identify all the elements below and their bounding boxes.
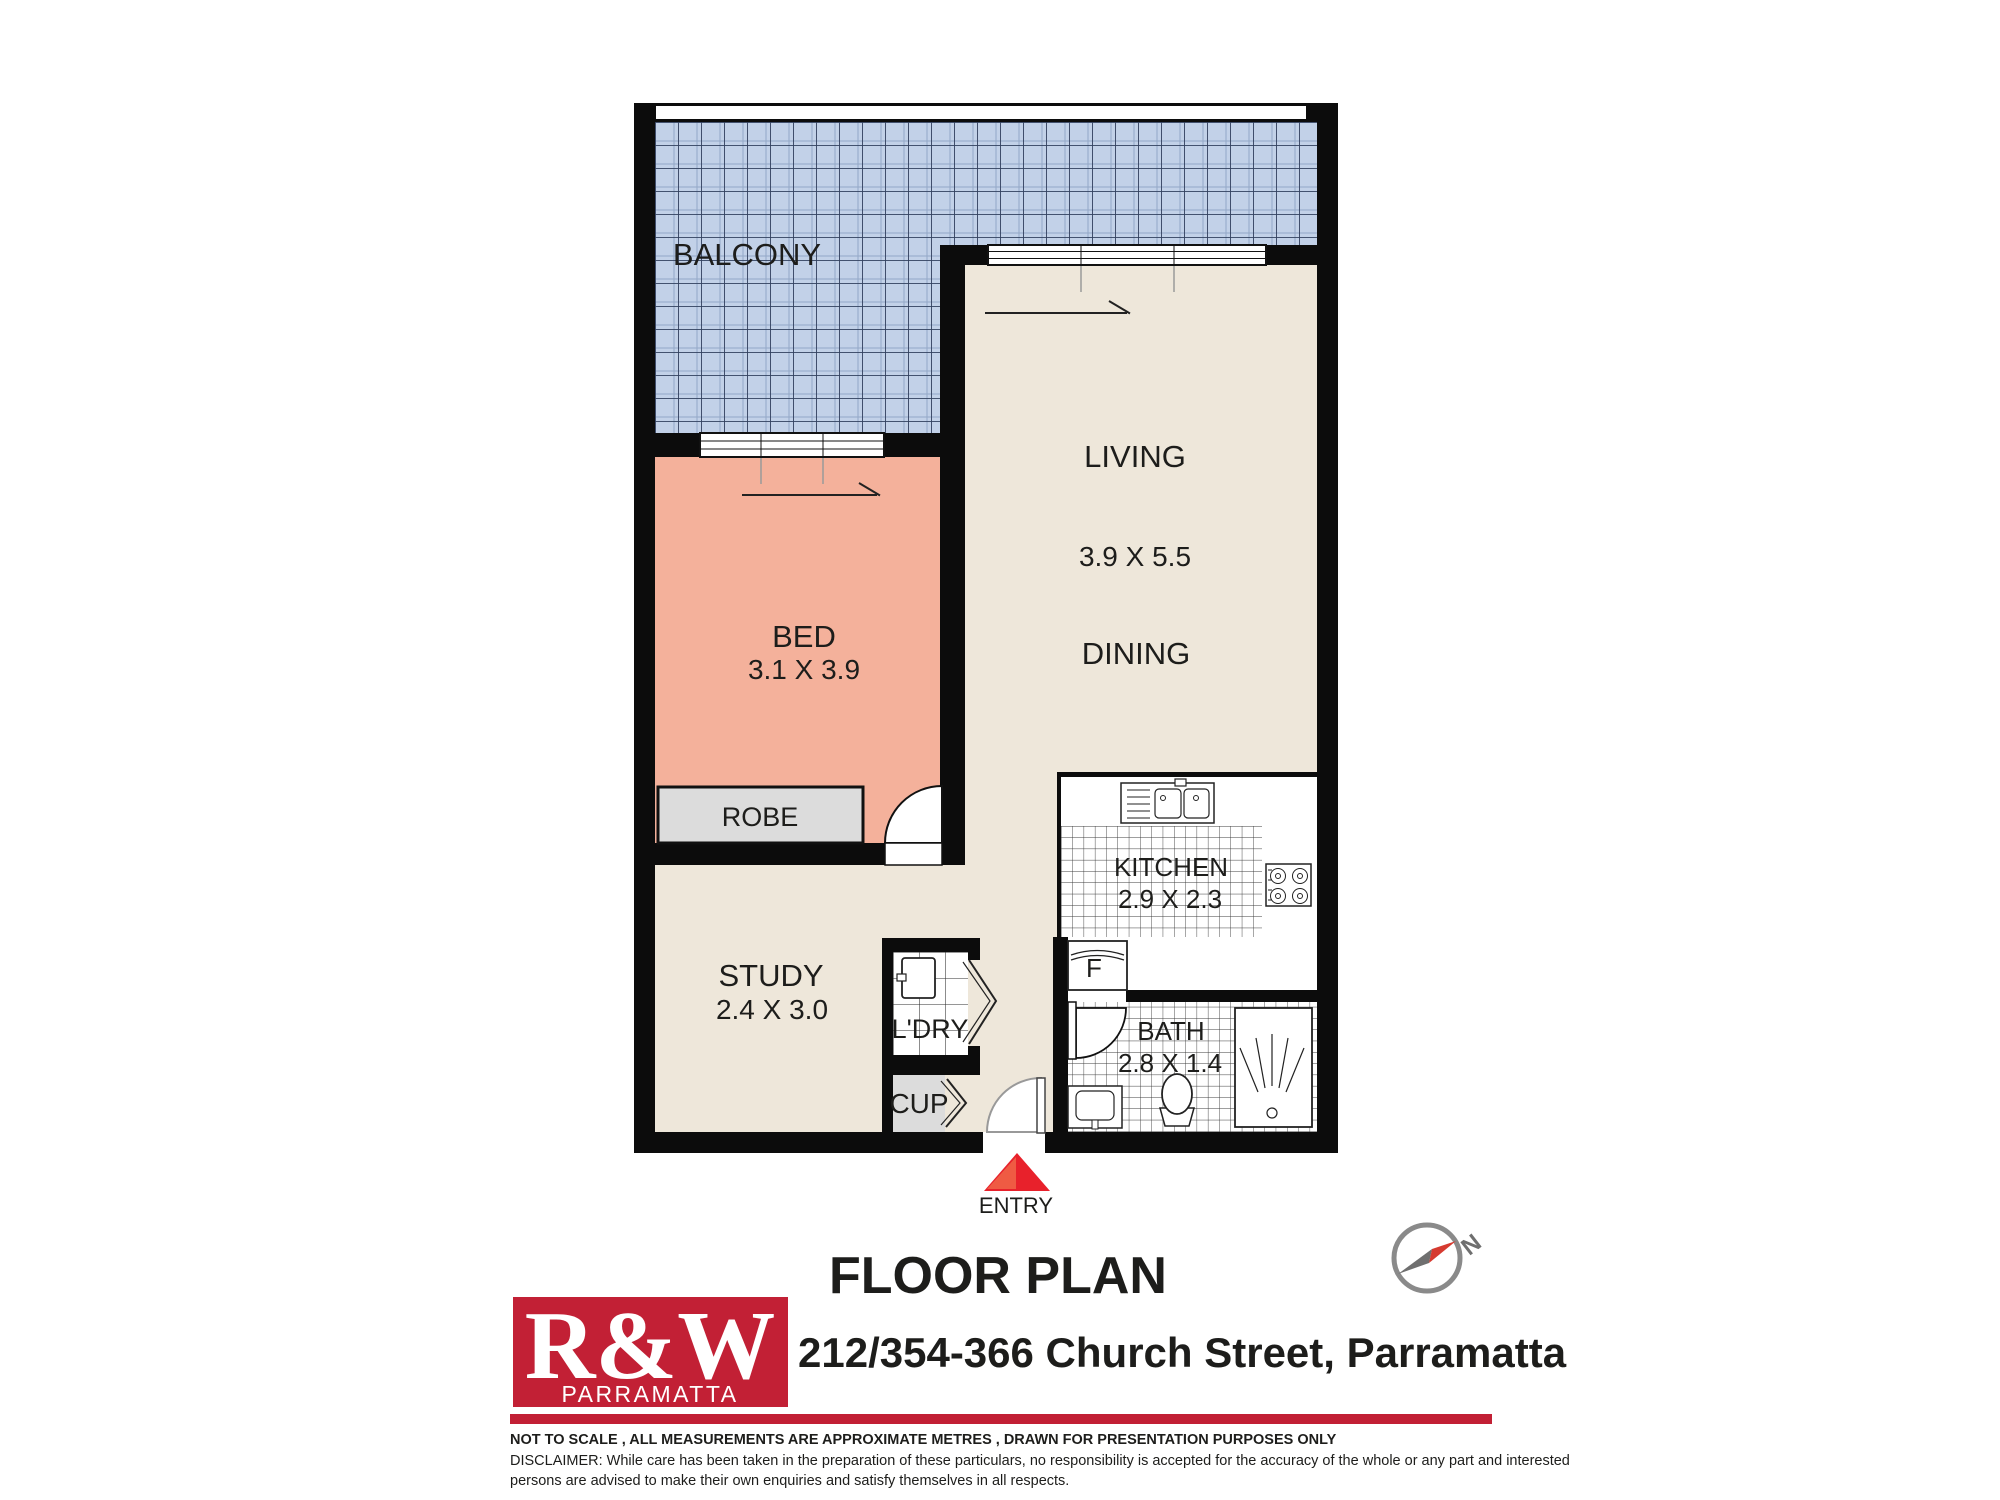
robe-label: ROBE [722, 802, 799, 832]
balcony-label: BALCONY [673, 237, 821, 272]
wall-balcony-living [940, 245, 965, 865]
wall-bed-bottom [655, 843, 885, 865]
laundry-fixtures [897, 958, 935, 998]
entry-marker: ENTRY [979, 1153, 1053, 1218]
disclaimer-line2: DISCLAIMER: While care has been taken in… [510, 1453, 1570, 1469]
wall-laundry-bottom [882, 1055, 980, 1075]
wall-right [1317, 103, 1338, 1153]
toilet [1160, 1074, 1194, 1126]
sink [1121, 779, 1214, 823]
shower [1235, 1008, 1312, 1127]
wall-laundry-top [882, 938, 980, 952]
wall-bottom-right [1045, 1132, 1338, 1153]
wall-bottom-left [634, 1132, 983, 1153]
cupboard-label: CUP [889, 1088, 948, 1119]
bed-dims: 3.1 X 3.9 [748, 654, 860, 685]
stove [1266, 864, 1311, 906]
basin [1068, 1086, 1122, 1129]
page-title: FLOOR PLAN [829, 1247, 1167, 1305]
entry-label: ENTRY [979, 1193, 1053, 1218]
compass: N [1394, 1225, 1487, 1291]
bed-label: BED [772, 619, 836, 654]
study-dims: 2.4 X 3.0 [716, 994, 828, 1025]
living-dims: 3.9 X 5.5 [1079, 541, 1191, 572]
kitchen-label: KITCHEN [1114, 852, 1228, 882]
dining-label: DINING [1082, 636, 1191, 671]
living-window [988, 245, 1266, 265]
kitchen-counter-edge-left [1057, 776, 1061, 937]
wall-left [634, 103, 655, 1153]
floor-plan-canvas: BALCONY LIVING 3.9 X 5.5 DINING BED 3.1 … [0, 0, 2000, 1500]
study-label: STUDY [718, 958, 823, 993]
property-address: 212/354-366 Church Street, Parramatta [798, 1329, 1567, 1376]
floor-plan-page: BALCONY LIVING 3.9 X 5.5 DINING BED 3.1 … [0, 0, 2000, 1500]
wall-kitchen-bath [1126, 990, 1317, 1002]
washing-machine [902, 958, 935, 998]
kitchen-dims: 2.9 X 2.3 [1118, 884, 1222, 914]
logo-office: PARRAMATTA [561, 1381, 738, 1407]
laundry-label: L'DRY [892, 1014, 969, 1044]
bath-dims: 2.8 X 1.4 [1118, 1048, 1222, 1078]
fridge-label: F [1086, 953, 1102, 983]
disclaimer-line3: persons are advised to make their own en… [510, 1473, 1069, 1489]
kitchen-counter-edge-top [1057, 772, 1317, 777]
living-label: LIVING [1084, 439, 1186, 474]
bath-label: BATH [1137, 1016, 1204, 1046]
bed-window [700, 433, 884, 457]
wall-bath-left [1053, 937, 1068, 1133]
footer-divider-bar [510, 1414, 1492, 1424]
disclaimer-line1: NOT TO SCALE , ALL MEASUREMENTS ARE APPR… [510, 1432, 1337, 1448]
balcony-railing [656, 106, 1306, 119]
